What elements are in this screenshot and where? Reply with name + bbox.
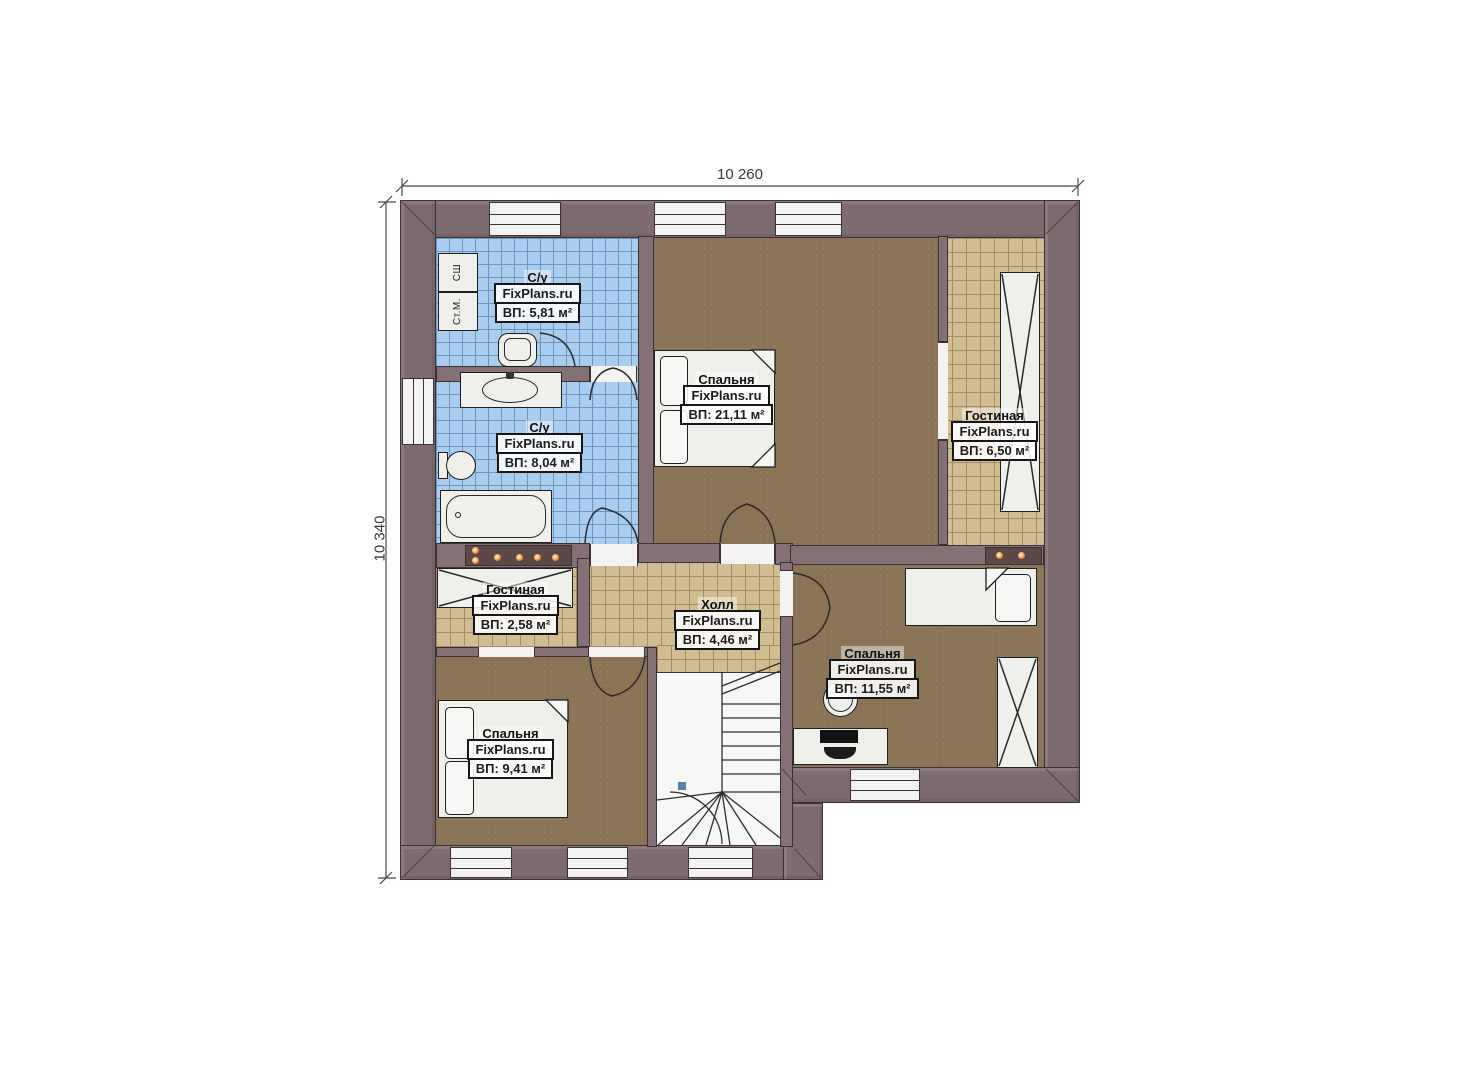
label-hall: Холл FixPlans.ru ВП: 4,46 м²	[650, 597, 785, 650]
label-living-left: Гостиная FixPlans.ru ВП: 2,58 м²	[448, 582, 583, 635]
wall-right	[1044, 200, 1080, 803]
label-bath-top: С/у FixPlans.ru ВП: 5,81 м²	[470, 270, 605, 323]
brand-box: FixPlans.ru	[472, 595, 558, 616]
window-left	[402, 378, 434, 445]
dimension-width: 10 260	[690, 166, 790, 183]
wardrobe-living-right	[1000, 272, 1040, 512]
bathtub	[440, 490, 552, 543]
window-top-3	[775, 202, 842, 236]
accent-dot	[534, 554, 541, 561]
floor-stairwell	[652, 672, 784, 847]
window-top-2	[654, 202, 726, 236]
brand-box: FixPlans.ru	[467, 739, 553, 760]
accent-dot	[996, 552, 1003, 559]
partition-master-west	[638, 236, 654, 545]
label-bath-main: С/у FixPlans.ru ВП: 8,04 м²	[472, 420, 607, 473]
doorway-bath-divider	[590, 366, 637, 382]
floor-plan: СШ Ст.М.	[0, 0, 1473, 1080]
wardrobe-bedroom-right	[997, 657, 1038, 768]
accent-dot	[552, 554, 559, 561]
area-box: ВП: 21,11 м²	[680, 404, 772, 425]
accent-dot	[472, 557, 479, 564]
accent-dot	[472, 547, 479, 554]
accent-dot	[1018, 552, 1025, 559]
brand-box: FixPlans.ru	[494, 283, 580, 304]
wall-bottom-right	[780, 767, 1080, 803]
window-bottom-1	[450, 847, 512, 878]
sink-basin	[482, 377, 538, 403]
area-box: ВП: 8,04 м²	[497, 452, 583, 473]
area-box: ВП: 11,55 м²	[826, 678, 918, 699]
doorway-master-hall	[720, 544, 775, 564]
monitor	[820, 730, 858, 743]
bed-right	[905, 568, 1037, 626]
area-box: ВП: 4,46 м²	[675, 629, 761, 650]
wall-left	[400, 200, 436, 880]
accent-dot	[494, 554, 501, 561]
area-box: ВП: 9,41 м²	[468, 758, 554, 779]
window-stairs	[688, 847, 753, 878]
label-bedroom-left: Спальня FixPlans.ru ВП: 9,41 м²	[443, 726, 578, 779]
window-bedroom-right	[850, 769, 920, 801]
brand-box: FixPlans.ru	[674, 610, 760, 631]
accent-band-right	[985, 547, 1042, 565]
doorway-bedroom-left	[588, 647, 645, 657]
label-bedroom-master: Спальня FixPlans.ru ВП: 21,11 м²	[659, 372, 794, 425]
partition-hall-north-a	[638, 543, 720, 563]
partition-stair-west	[647, 647, 657, 847]
area-box: ВП: 2,58 м²	[473, 614, 559, 635]
brand-box: FixPlans.ru	[829, 659, 915, 680]
window-bottom-2	[567, 847, 628, 878]
area-box: ВП: 5,81 м²	[495, 302, 581, 323]
brand-box: FixPlans.ru	[496, 433, 582, 454]
accent-dot	[516, 554, 523, 561]
sink-faucet	[506, 372, 514, 379]
brand-box: FixPlans.ru	[683, 385, 769, 406]
dimension-height: 10 340	[372, 489, 389, 589]
passage-nook-bedroom-left	[478, 647, 535, 657]
brand-box: FixPlans.ru	[951, 421, 1037, 442]
label-bedroom-right: Спальня FixPlans.ru ВП: 11,55 м²	[805, 646, 940, 699]
doorway-bath-hall	[590, 544, 638, 566]
area-box: ВП: 6,50 м²	[952, 440, 1038, 461]
window-top-1	[489, 202, 561, 236]
partition-living-right-a	[938, 236, 948, 342]
toilet-top	[498, 333, 537, 367]
label-living-right: Гостиная FixPlans.ru ВП: 6,50 м²	[927, 408, 1062, 461]
